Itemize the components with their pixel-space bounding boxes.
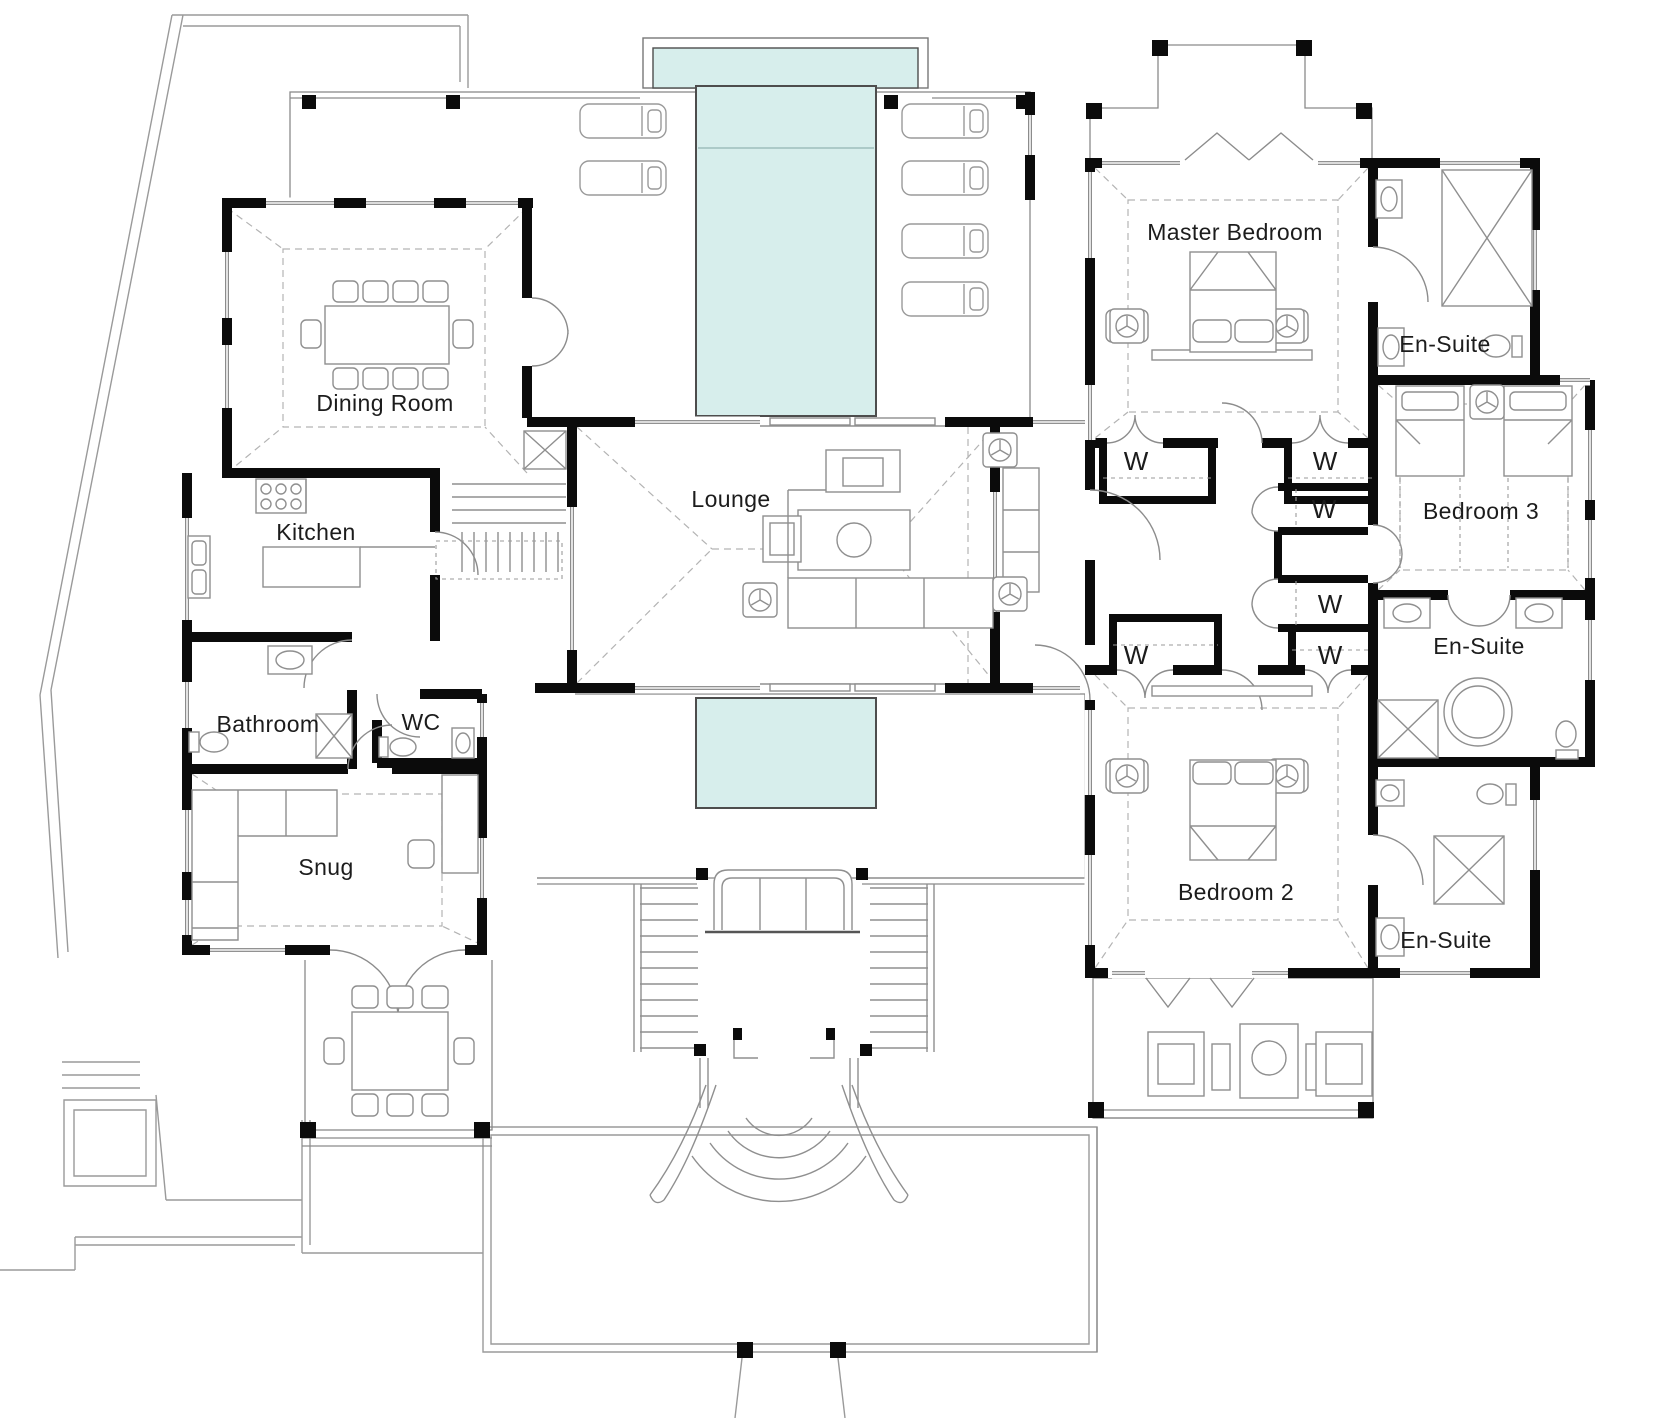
label-ensuite-bedroom2: En-Suite bbox=[1400, 927, 1491, 953]
label-wc: WC bbox=[401, 709, 440, 735]
bedroom2-terrace-furniture bbox=[1148, 1024, 1372, 1098]
main-pool bbox=[696, 86, 876, 416]
label-master-bedroom: Master Bedroom bbox=[1147, 219, 1323, 245]
label-ensuite-bedroom3: En-Suite bbox=[1433, 633, 1524, 659]
label-kitchen: Kitchen bbox=[276, 519, 356, 545]
floor-plan-drawing: Dining Room Kitchen Bathroom WC Snug Lou… bbox=[0, 0, 1656, 1418]
label-wardrobe-5: W bbox=[1124, 640, 1149, 670]
label-wardrobe-2: W bbox=[1313, 446, 1338, 476]
label-bathroom: Bathroom bbox=[217, 711, 320, 737]
label-dining-room: Dining Room bbox=[316, 390, 453, 416]
lower-pool bbox=[696, 698, 876, 808]
label-snug: Snug bbox=[298, 854, 353, 880]
label-ensuite-master: En-Suite bbox=[1399, 331, 1490, 357]
label-bedroom2: Bedroom 2 bbox=[1178, 879, 1294, 905]
label-wardrobe-1: W bbox=[1124, 446, 1149, 476]
floor-plan-page: Dining Room Kitchen Bathroom WC Snug Lou… bbox=[0, 0, 1656, 1418]
pool-header-trough bbox=[653, 48, 918, 88]
label-lounge: Lounge bbox=[691, 486, 770, 512]
label-bedroom3: Bedroom 3 bbox=[1423, 498, 1539, 524]
label-wardrobe-4: W bbox=[1318, 589, 1343, 619]
label-wardrobe-3: W bbox=[1312, 494, 1337, 524]
label-wardrobe-6: W bbox=[1318, 640, 1343, 670]
